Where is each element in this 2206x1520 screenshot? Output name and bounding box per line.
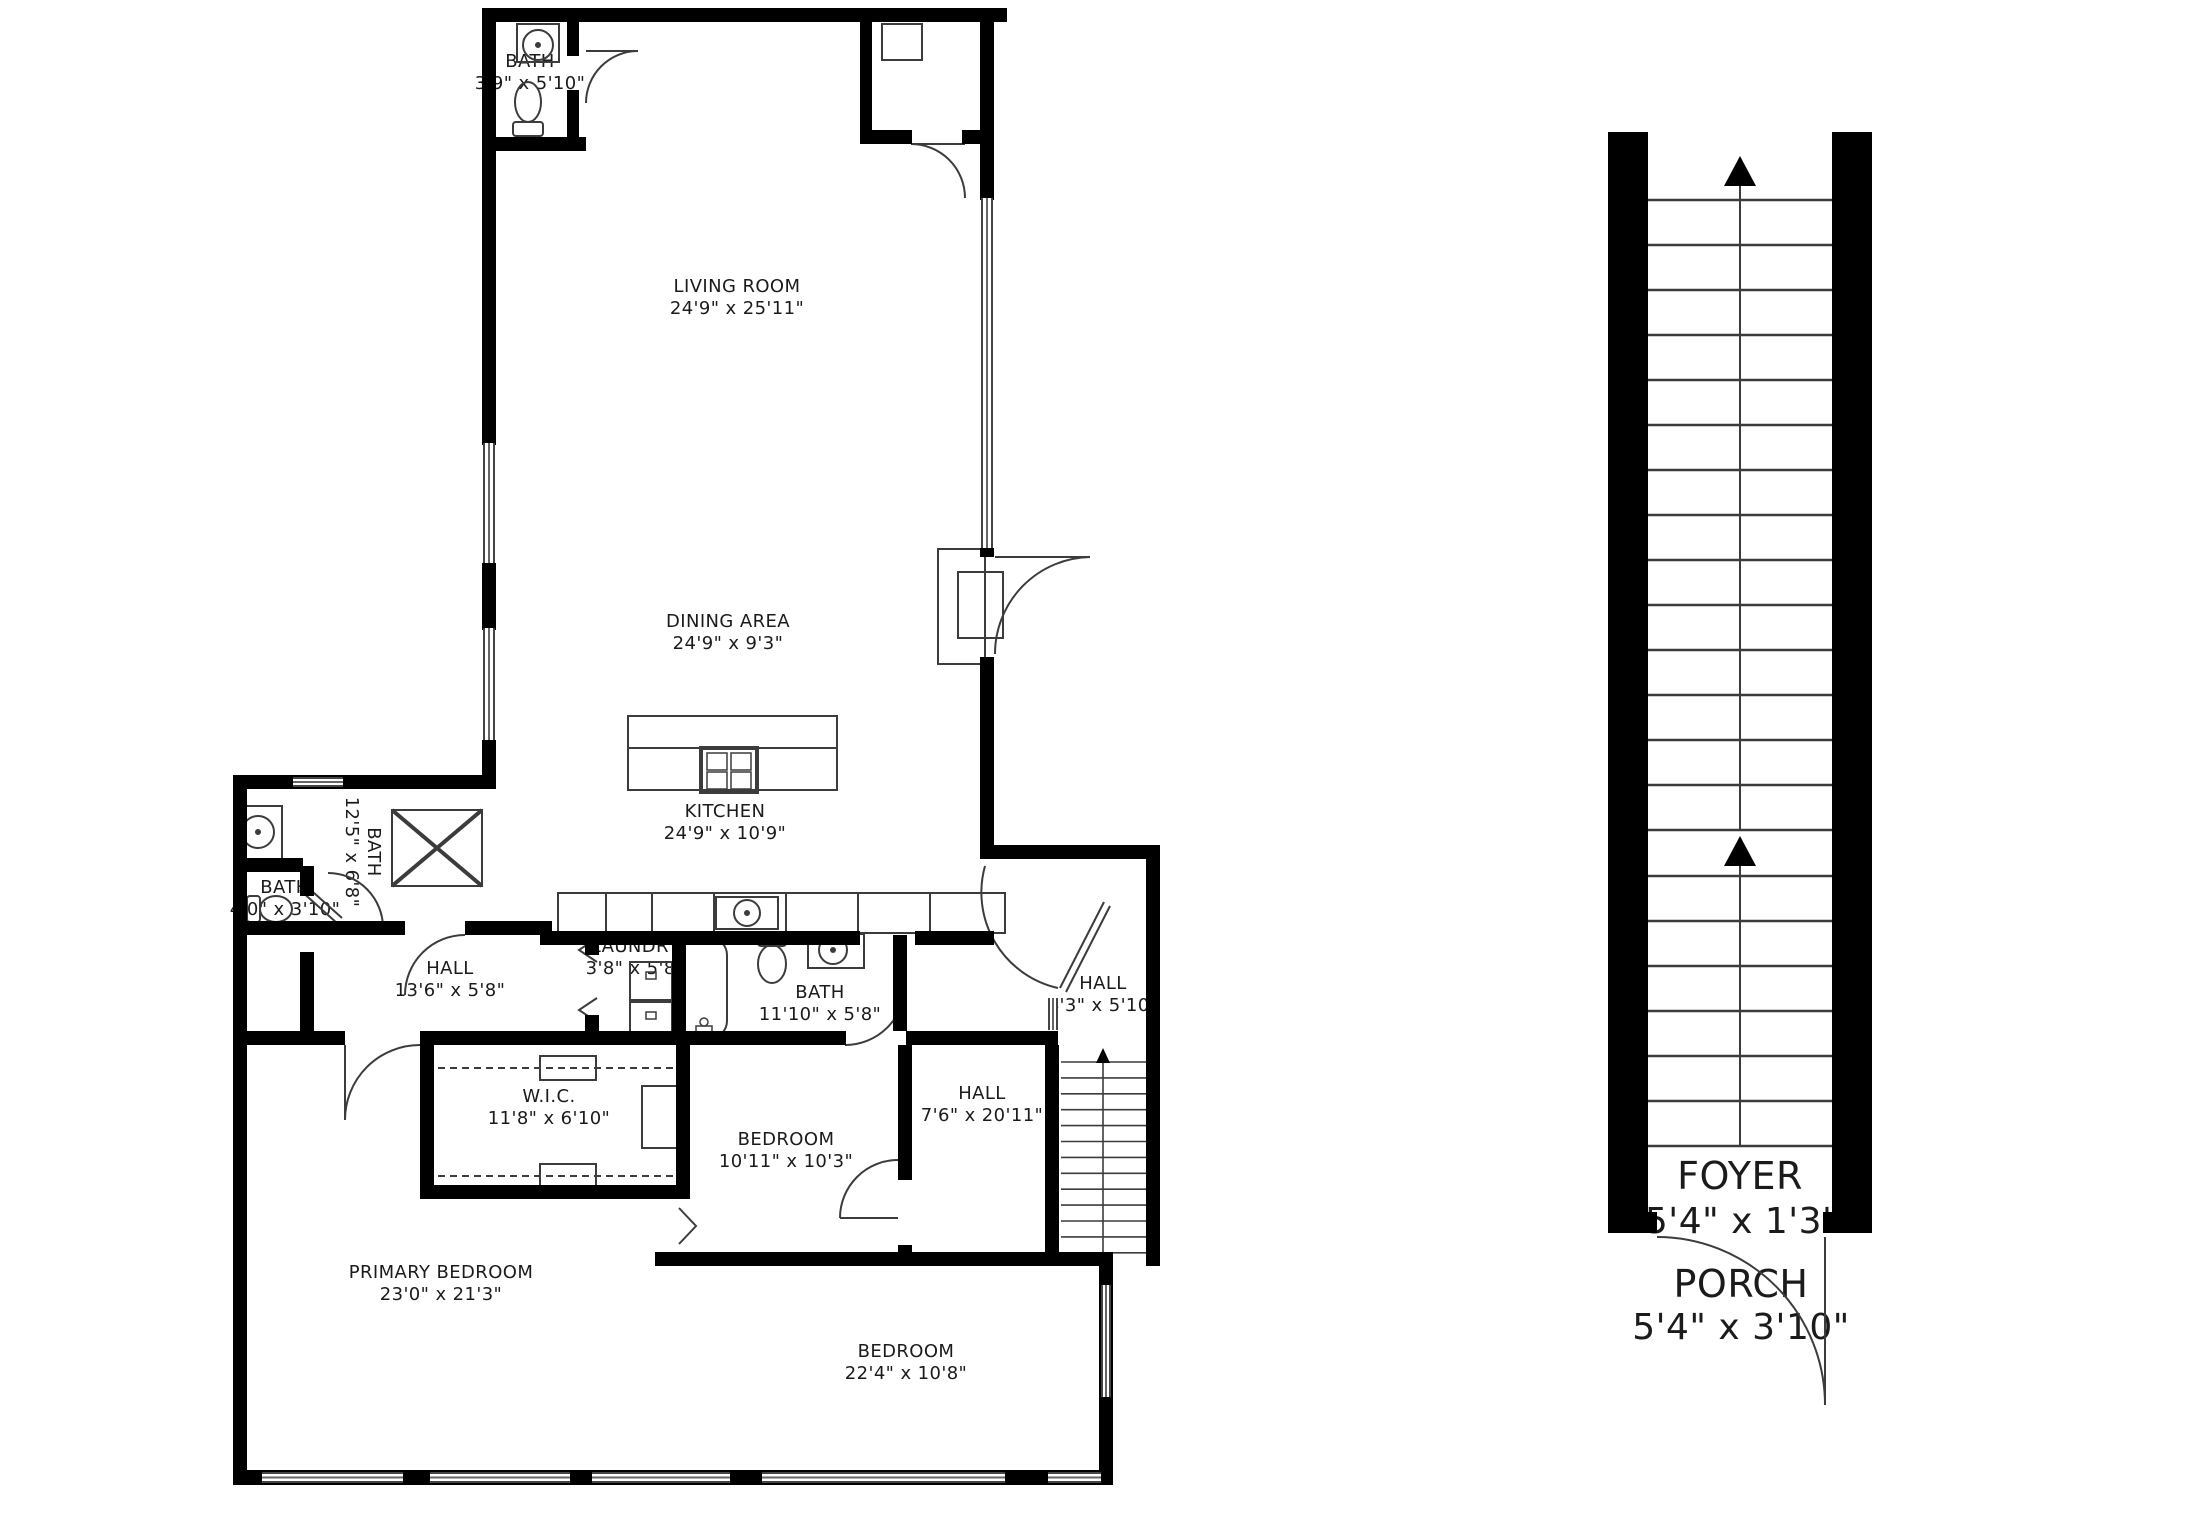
stair-direction-arrow	[1724, 836, 1756, 866]
wall	[1608, 132, 1648, 1233]
window	[483, 628, 495, 740]
bath-125-door-arc	[328, 873, 383, 928]
stair-direction-arrow	[1724, 156, 1756, 186]
wall	[676, 1045, 690, 1193]
bedroom-1011-door	[840, 1160, 898, 1218]
wall	[233, 858, 303, 872]
wall	[585, 1015, 599, 1035]
wall	[672, 935, 686, 1031]
wall	[980, 845, 1160, 859]
kitchen-counter	[558, 893, 1005, 933]
wall	[585, 935, 599, 955]
washer-dryer	[630, 962, 672, 1040]
stair-direction-arrow	[1096, 1048, 1110, 1063]
wall	[465, 921, 552, 935]
hall-closet-x	[392, 810, 482, 886]
bath-top-sink	[517, 24, 559, 62]
wall	[1832, 132, 1872, 1233]
closet-door-arc	[911, 144, 965, 198]
window	[1048, 1472, 1101, 1483]
bath-top-door-arc	[586, 51, 638, 103]
wall	[655, 1252, 1113, 1266]
wall	[567, 22, 579, 56]
window	[1101, 1285, 1111, 1397]
wall	[1608, 1212, 1657, 1233]
bath-top-toilet	[513, 82, 543, 136]
hall-43-door	[981, 866, 1110, 992]
hall-door-arc	[405, 935, 465, 995]
closet-shelf	[882, 24, 922, 60]
wall	[915, 931, 994, 945]
porch-outline	[1657, 1237, 1825, 1405]
window	[430, 1472, 570, 1483]
wall	[420, 1031, 690, 1045]
wall	[300, 866, 314, 896]
window	[483, 443, 495, 563]
window	[762, 1472, 1005, 1483]
bathtub	[681, 938, 727, 1038]
wall	[425, 1185, 690, 1199]
wall	[233, 775, 488, 789]
fireplace	[938, 549, 1003, 664]
wall	[893, 935, 907, 1031]
window	[262, 1472, 403, 1483]
wall	[690, 1031, 846, 1045]
wic-shelving	[438, 1056, 688, 1188]
window	[981, 198, 993, 548]
wall	[906, 1031, 1058, 1045]
window	[1048, 998, 1058, 1030]
window	[592, 1472, 730, 1483]
wall	[233, 775, 247, 1485]
kitchen-island	[628, 716, 837, 792]
wall	[233, 1031, 345, 1045]
wall	[482, 8, 496, 445]
wall	[898, 1045, 912, 1180]
primary-door-arc	[345, 1045, 420, 1120]
floor-plan: BATH 3'9" x 5'10" LIVING ROOM 24'9" x 25…	[0, 0, 2206, 1520]
dining-door-arc	[995, 557, 1090, 654]
wall	[1045, 1045, 1059, 1252]
wall	[980, 548, 994, 557]
wall	[482, 137, 586, 151]
wall	[898, 1245, 912, 1257]
wall	[482, 563, 496, 630]
wall	[860, 22, 872, 130]
wall	[420, 1031, 434, 1199]
wall	[860, 130, 912, 144]
wall	[233, 921, 405, 935]
wall	[980, 8, 994, 200]
window	[293, 777, 343, 787]
wall	[482, 8, 1007, 22]
wall	[1823, 1212, 1872, 1233]
wall	[980, 657, 994, 853]
bath-40-toilet	[247, 896, 292, 922]
wall	[1146, 845, 1160, 1266]
wall	[962, 130, 980, 144]
wall	[300, 952, 314, 1031]
bedroom-closet-bifold	[679, 1208, 696, 1244]
